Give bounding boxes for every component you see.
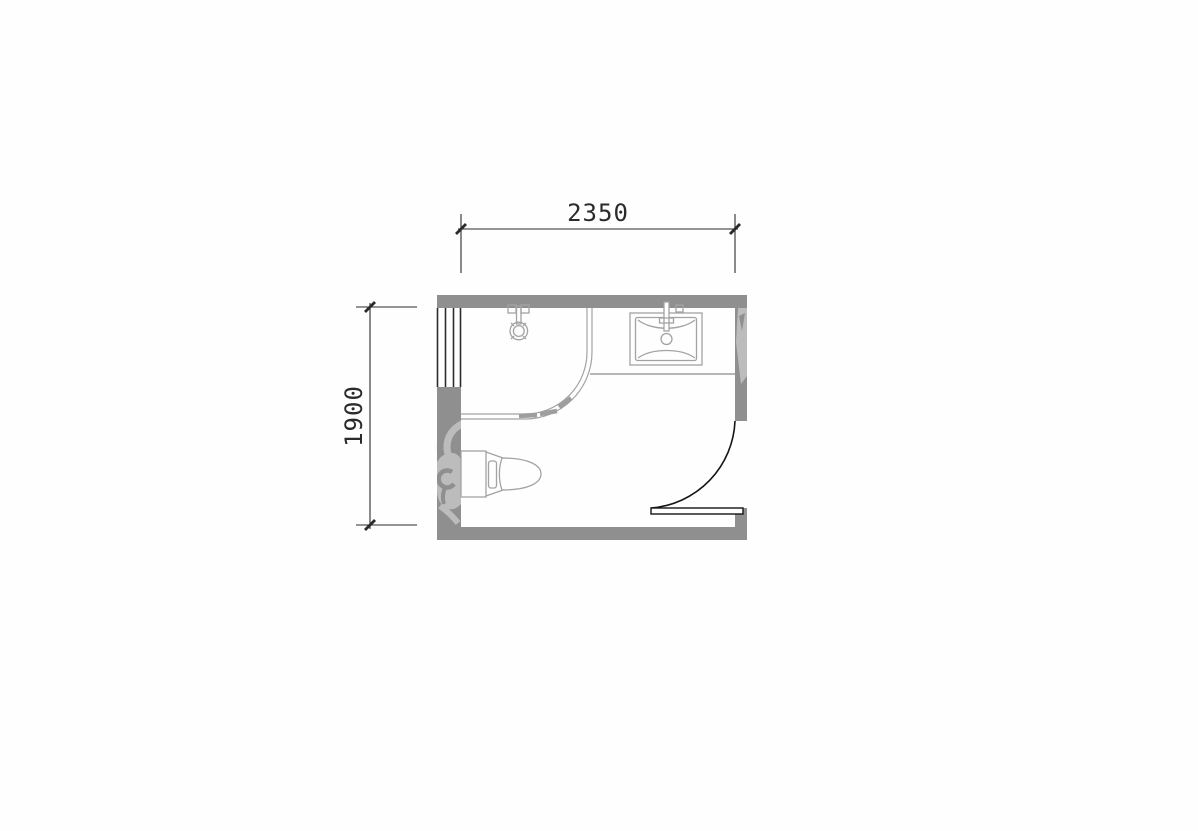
shower-enclosure-symbol [461, 308, 592, 419]
toilet-symbol [461, 451, 541, 497]
door-arc [651, 421, 735, 508]
shower-track-dash [540, 411, 557, 414]
window-symbol [438, 308, 461, 387]
door-leaf [651, 508, 743, 514]
dimension-vertical: 1900 [340, 302, 417, 530]
sink-symbol [630, 302, 702, 365]
toilet-bowl [499, 458, 541, 490]
toilet-tank [461, 451, 486, 497]
dimension-vertical-label: 1900 [340, 385, 368, 447]
dimension-horizontal-label: 2350 [567, 199, 629, 227]
floor-plan: 2350 1900 [0, 0, 1198, 831]
wall-bottom [437, 527, 747, 540]
toilet-seat [489, 461, 497, 488]
dimension-horizontal: 2350 [456, 199, 740, 273]
shower-fixture-symbol [508, 305, 529, 340]
drawing-canvas: 2350 1900 [0, 0, 1198, 831]
wall-top [437, 295, 747, 308]
shower-track-dash [519, 415, 537, 416]
sink-drain [661, 334, 672, 345]
sink-faucet [664, 302, 669, 331]
door-swing-symbol [651, 421, 743, 514]
